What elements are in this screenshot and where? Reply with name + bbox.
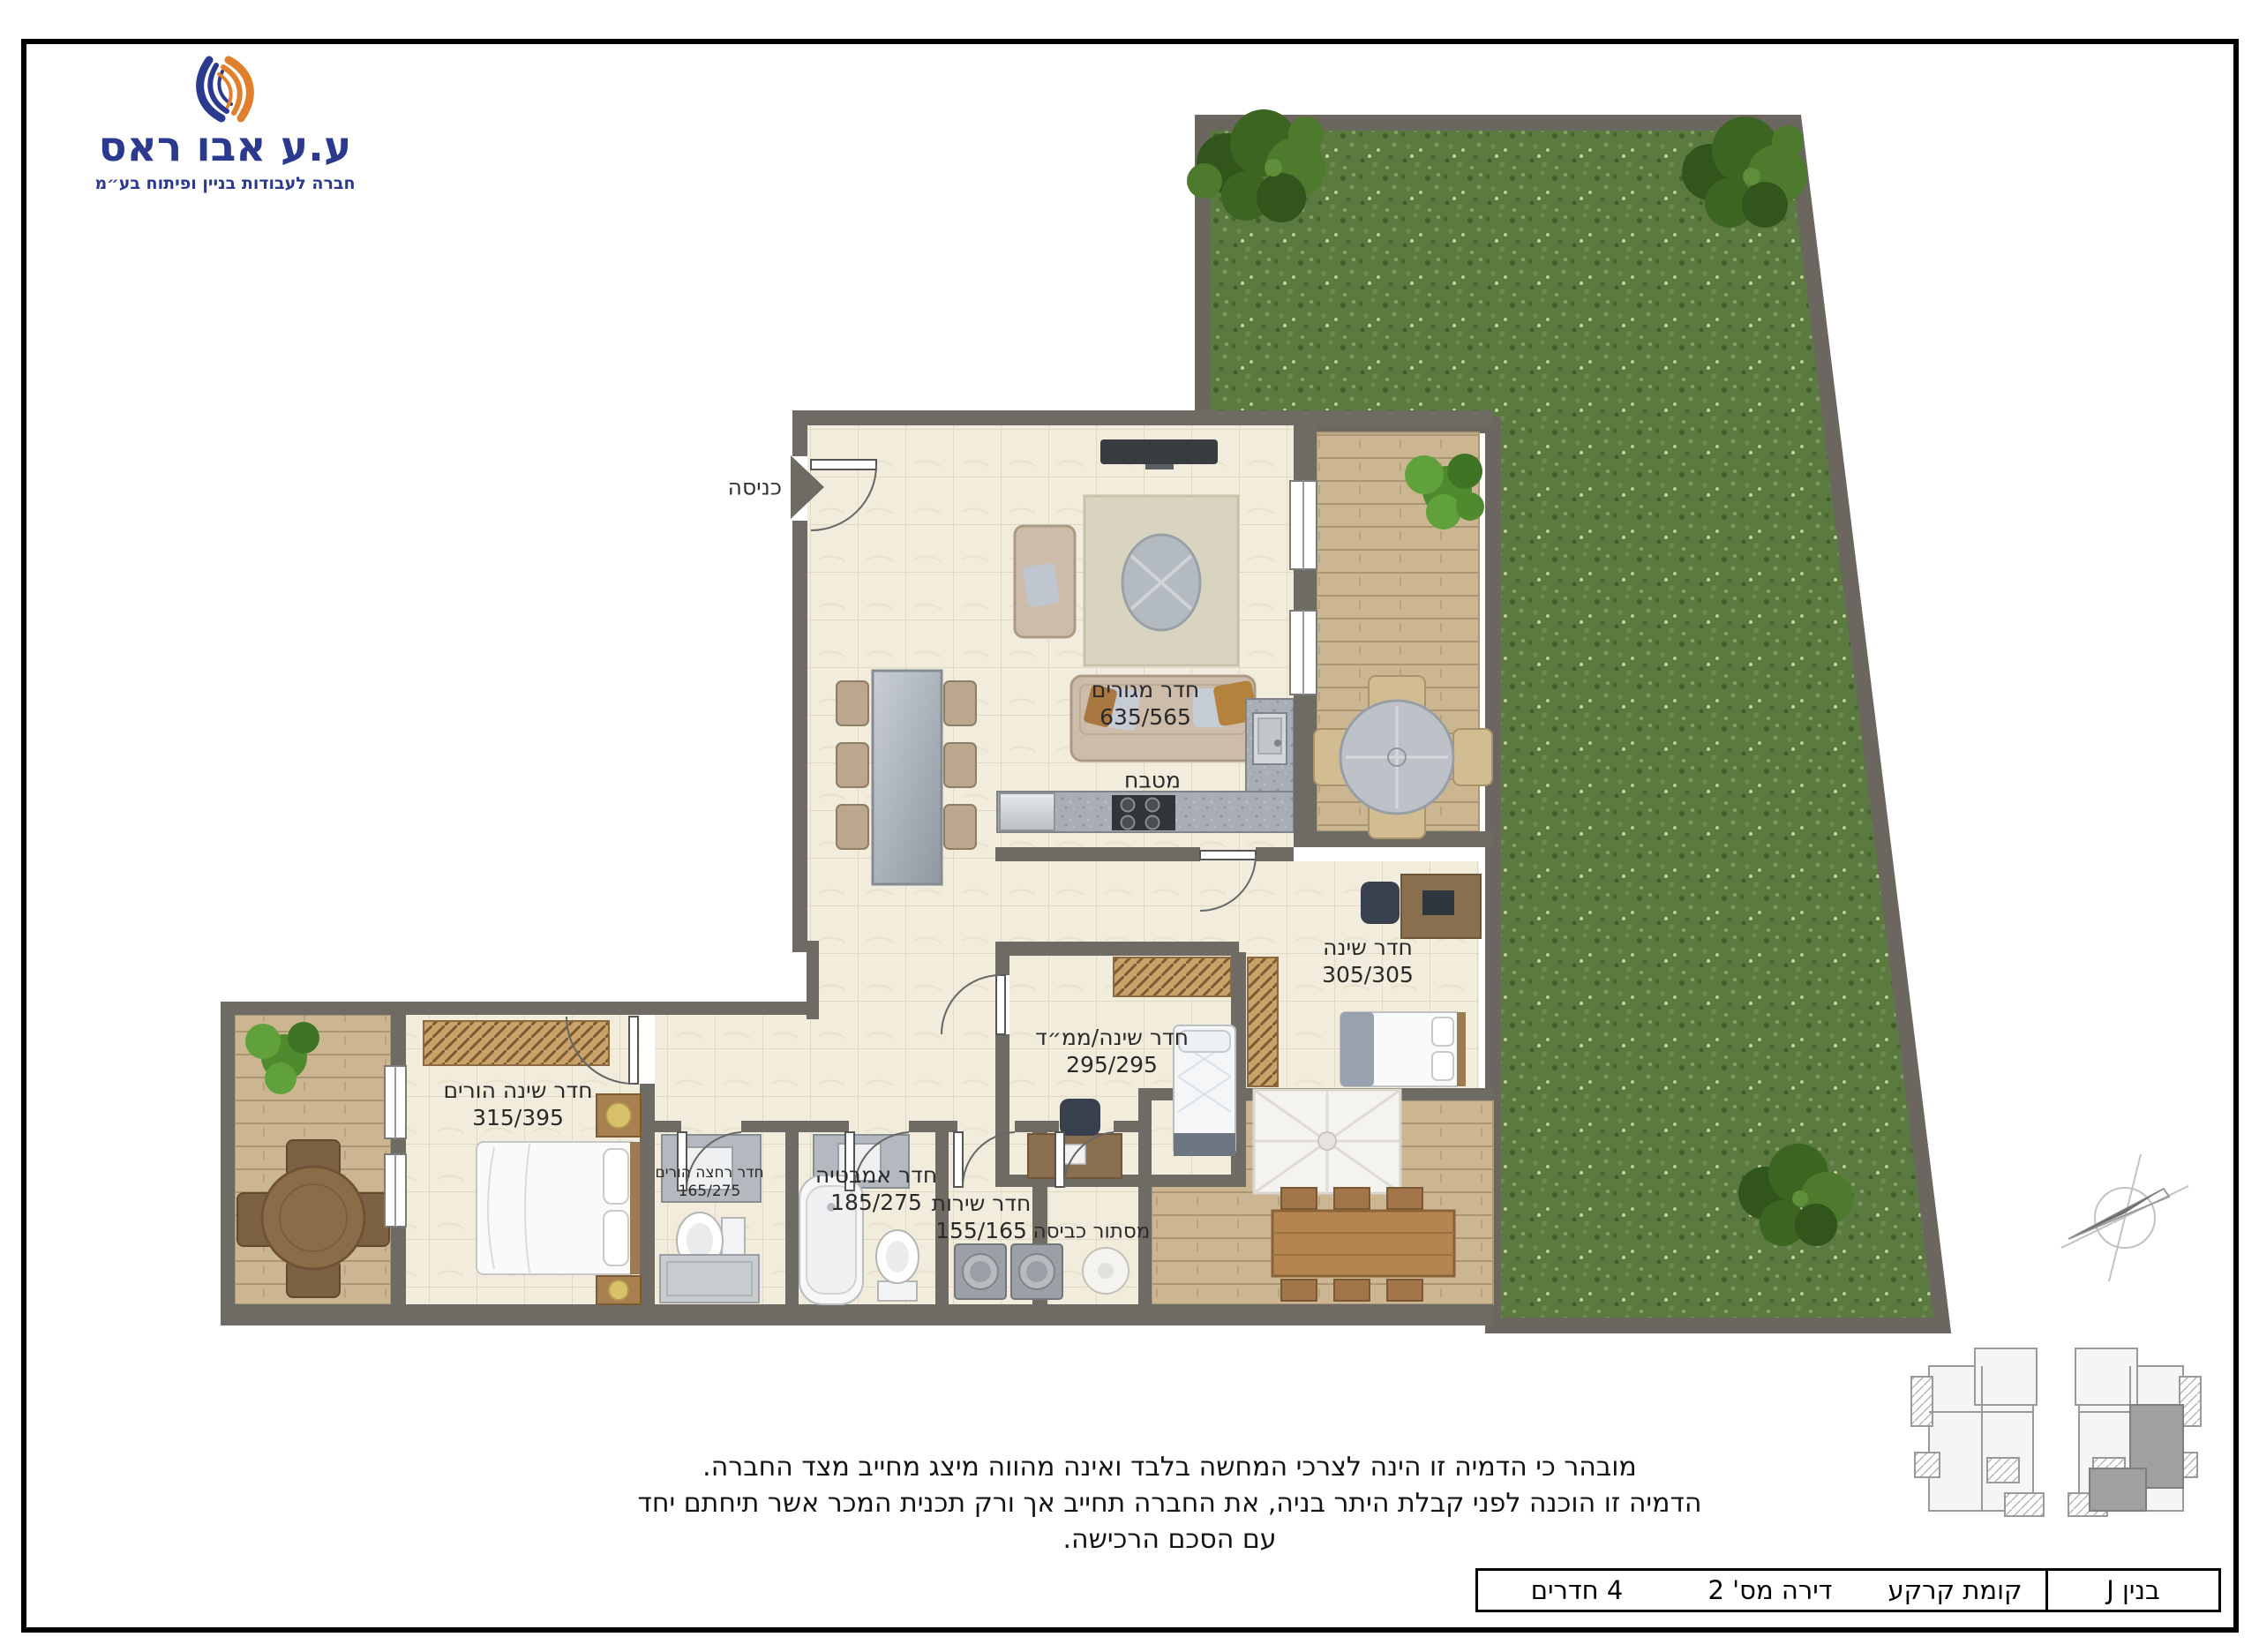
cell-floor: קומת קרקע xyxy=(1865,1571,2045,1610)
room-dims: 305/305 xyxy=(1322,961,1414,988)
label-parents-bath: חדר רחצה הורים 165/275 xyxy=(655,1164,763,1202)
chair xyxy=(1361,882,1400,924)
room-name: חדר אמבטיה xyxy=(815,1161,937,1189)
room-dims: 315/395 xyxy=(443,1104,592,1131)
chair xyxy=(1060,1099,1100,1136)
room-dims: 635/565 xyxy=(1092,703,1199,731)
label-service-room: חדר שירות 155/165 xyxy=(932,1190,1032,1245)
room-name: חדר שינה הורים xyxy=(443,1077,592,1104)
disclaimer-text: מובהר כי הדמיה זו הינה לצרכי המחשה בלבד … xyxy=(634,1449,1706,1558)
summary-table: בנין J קומת קרקע דירה מס' 2 4 חדרים xyxy=(1475,1568,2221,1612)
label-kitchen: מטבח xyxy=(1124,766,1181,793)
logo-icon xyxy=(183,53,267,125)
room-dims: 295/295 xyxy=(1035,1051,1189,1078)
cell-building: בנין J xyxy=(2045,1571,2218,1610)
room-name: מסתור כביסה xyxy=(1033,1220,1151,1245)
cell-rooms-count: 4 חדרים xyxy=(1478,1571,1676,1610)
room-dims: 185/275 xyxy=(815,1189,937,1216)
cell-apartment: דירה מס' 2 xyxy=(1676,1571,1865,1610)
room-name: חדר שינה/ממ״ד xyxy=(1035,1024,1189,1051)
highlighted-unit xyxy=(2090,1468,2146,1511)
label-living-room: חדר מגורים 635/565 xyxy=(1092,676,1199,732)
floor-plan-graphic xyxy=(0,0,2259,1652)
room-name: חדר שינה xyxy=(1322,934,1414,961)
building-key-map xyxy=(1911,1348,2201,1516)
label-bathroom: חדר אמבטיה 185/275 xyxy=(815,1161,937,1217)
fridge-icon xyxy=(1000,793,1054,830)
company-logo: ע.ע אבו ראס חברה לעבודות בניין ופיתוח בע… xyxy=(84,53,366,193)
entrance-label: כניסה xyxy=(728,475,782,500)
company-name: ע.ע אבו ראס xyxy=(84,125,366,169)
label-bedroom: חדר שינה 305/305 xyxy=(1322,934,1414,989)
tv-icon xyxy=(1100,439,1218,464)
compass-icon xyxy=(2061,1154,2188,1281)
room-name: מטבח xyxy=(1124,766,1181,793)
page: ע.ע אבו ראס חברה לעבודות בניין ופיתוח בע… xyxy=(0,0,2259,1652)
label-laundry: מסתור כביסה xyxy=(1033,1220,1151,1245)
disclaimer-line-1: מובהר כי הדמיה זו הינה לצרכי המחשה בלבד … xyxy=(634,1449,1706,1485)
room-name: חדר שירות xyxy=(932,1190,1032,1217)
room-dims: 165/275 xyxy=(655,1183,763,1201)
company-tagline: חברה לעבודות בניין ופיתוח בע״מ xyxy=(84,174,366,193)
laundry-fixtures xyxy=(1083,1248,1129,1294)
room-dims: 155/165 xyxy=(932,1217,1032,1244)
disclaimer-line-2: הדמיה זו הוכנה לפני קבלת היתר בניה, את ה… xyxy=(634,1485,1706,1558)
label-mamad: חדר שינה/ממ״ד 295/295 xyxy=(1035,1024,1189,1079)
toilet-icon xyxy=(878,1281,917,1301)
room-name: חדר מגורים xyxy=(1092,676,1199,703)
label-parents-bedroom: חדר שינה הורים 315/395 xyxy=(443,1077,592,1132)
room-name: חדר רחצה הורים xyxy=(655,1164,763,1183)
